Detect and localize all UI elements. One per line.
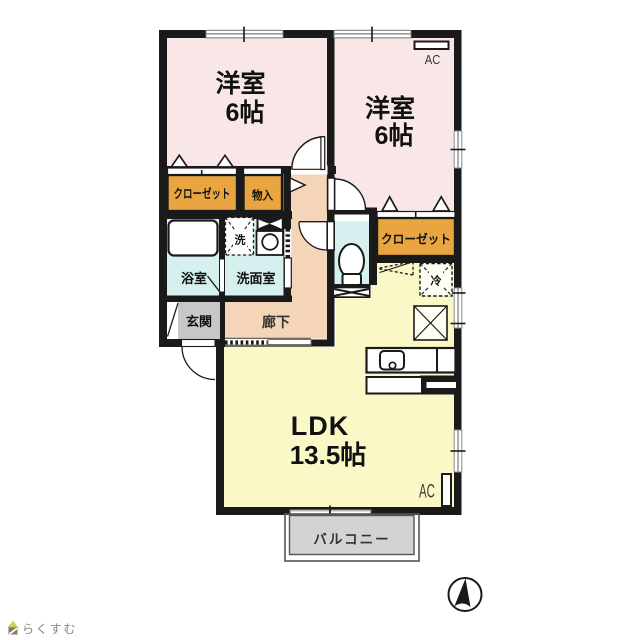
svg-text:冷: 冷: [431, 274, 442, 288]
svg-text:6帖: 6帖: [226, 99, 265, 127]
svg-text:クローゼット: クローゼット: [174, 186, 231, 201]
svg-text:クローゼット: クローゼット: [381, 232, 451, 247]
svg-text:廊下: 廊下: [262, 314, 290, 330]
svg-text:玄関: 玄関: [186, 314, 212, 329]
svg-text:浴室: 浴室: [181, 271, 207, 286]
svg-text:LDK: LDK: [291, 411, 350, 441]
svg-text:物入: 物入: [252, 188, 273, 203]
svg-text:洗: 洗: [235, 233, 246, 247]
svg-text:洋室: 洋室: [215, 69, 265, 98]
svg-text:AC: AC: [425, 52, 441, 67]
svg-text:13.5帖: 13.5帖: [290, 440, 367, 470]
svg-text:6帖: 6帖: [375, 122, 414, 150]
svg-text:AC: AC: [419, 482, 435, 503]
svg-text:バルコニー: バルコニー: [313, 532, 390, 547]
svg-text:洗面室: 洗面室: [236, 271, 275, 286]
svg-text:らくすむ: らくすむ: [22, 622, 77, 636]
svg-text:洋室: 洋室: [365, 94, 415, 123]
